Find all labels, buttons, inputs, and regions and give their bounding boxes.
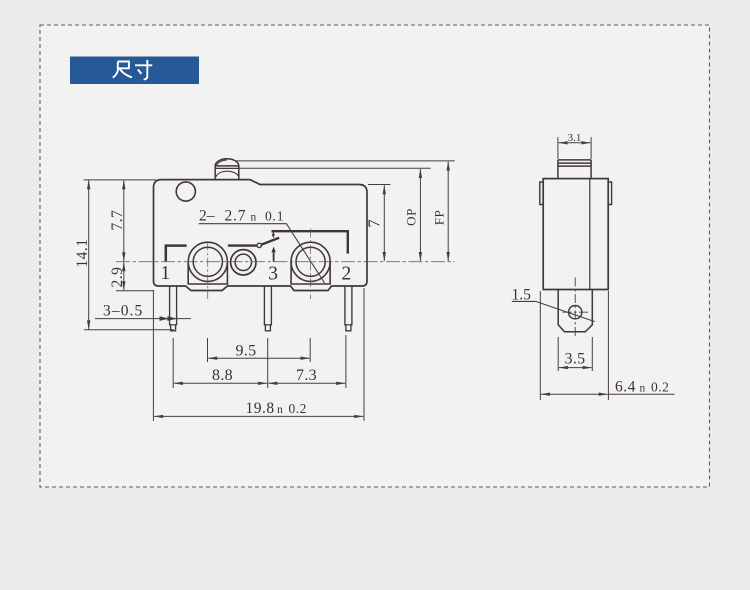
svg-text:2.9: 2.9 bbox=[109, 267, 126, 288]
svg-text:3–0.5: 3–0.5 bbox=[103, 303, 143, 320]
svg-text:FP: FP bbox=[432, 210, 447, 225]
svg-text:n: n bbox=[251, 212, 257, 224]
svg-text:n: n bbox=[277, 404, 283, 416]
svg-text:7.3: 7.3 bbox=[296, 367, 317, 384]
svg-text:19.8: 19.8 bbox=[246, 400, 275, 417]
svg-text:7.7: 7.7 bbox=[109, 210, 126, 231]
svg-text:0.1: 0.1 bbox=[265, 209, 284, 224]
svg-text:1: 1 bbox=[161, 263, 171, 284]
svg-text:2–: 2– bbox=[199, 208, 215, 225]
svg-text:n: n bbox=[640, 383, 646, 395]
svg-text:0.2: 0.2 bbox=[289, 401, 307, 416]
svg-text:OP: OP bbox=[404, 208, 419, 226]
svg-text:3: 3 bbox=[268, 264, 278, 285]
svg-text:7: 7 bbox=[365, 219, 384, 227]
svg-text:2: 2 bbox=[342, 264, 352, 285]
svg-text:9.5: 9.5 bbox=[236, 343, 257, 360]
svg-text:3.5: 3.5 bbox=[565, 351, 586, 368]
svg-text:2.7: 2.7 bbox=[225, 208, 247, 225]
svg-text:14.1: 14.1 bbox=[74, 238, 91, 267]
svg-text:6.4: 6.4 bbox=[615, 379, 636, 396]
svg-text:8.8: 8.8 bbox=[212, 367, 233, 384]
svg-text:0.2: 0.2 bbox=[651, 380, 669, 395]
svg-text:3.1: 3.1 bbox=[568, 132, 582, 144]
